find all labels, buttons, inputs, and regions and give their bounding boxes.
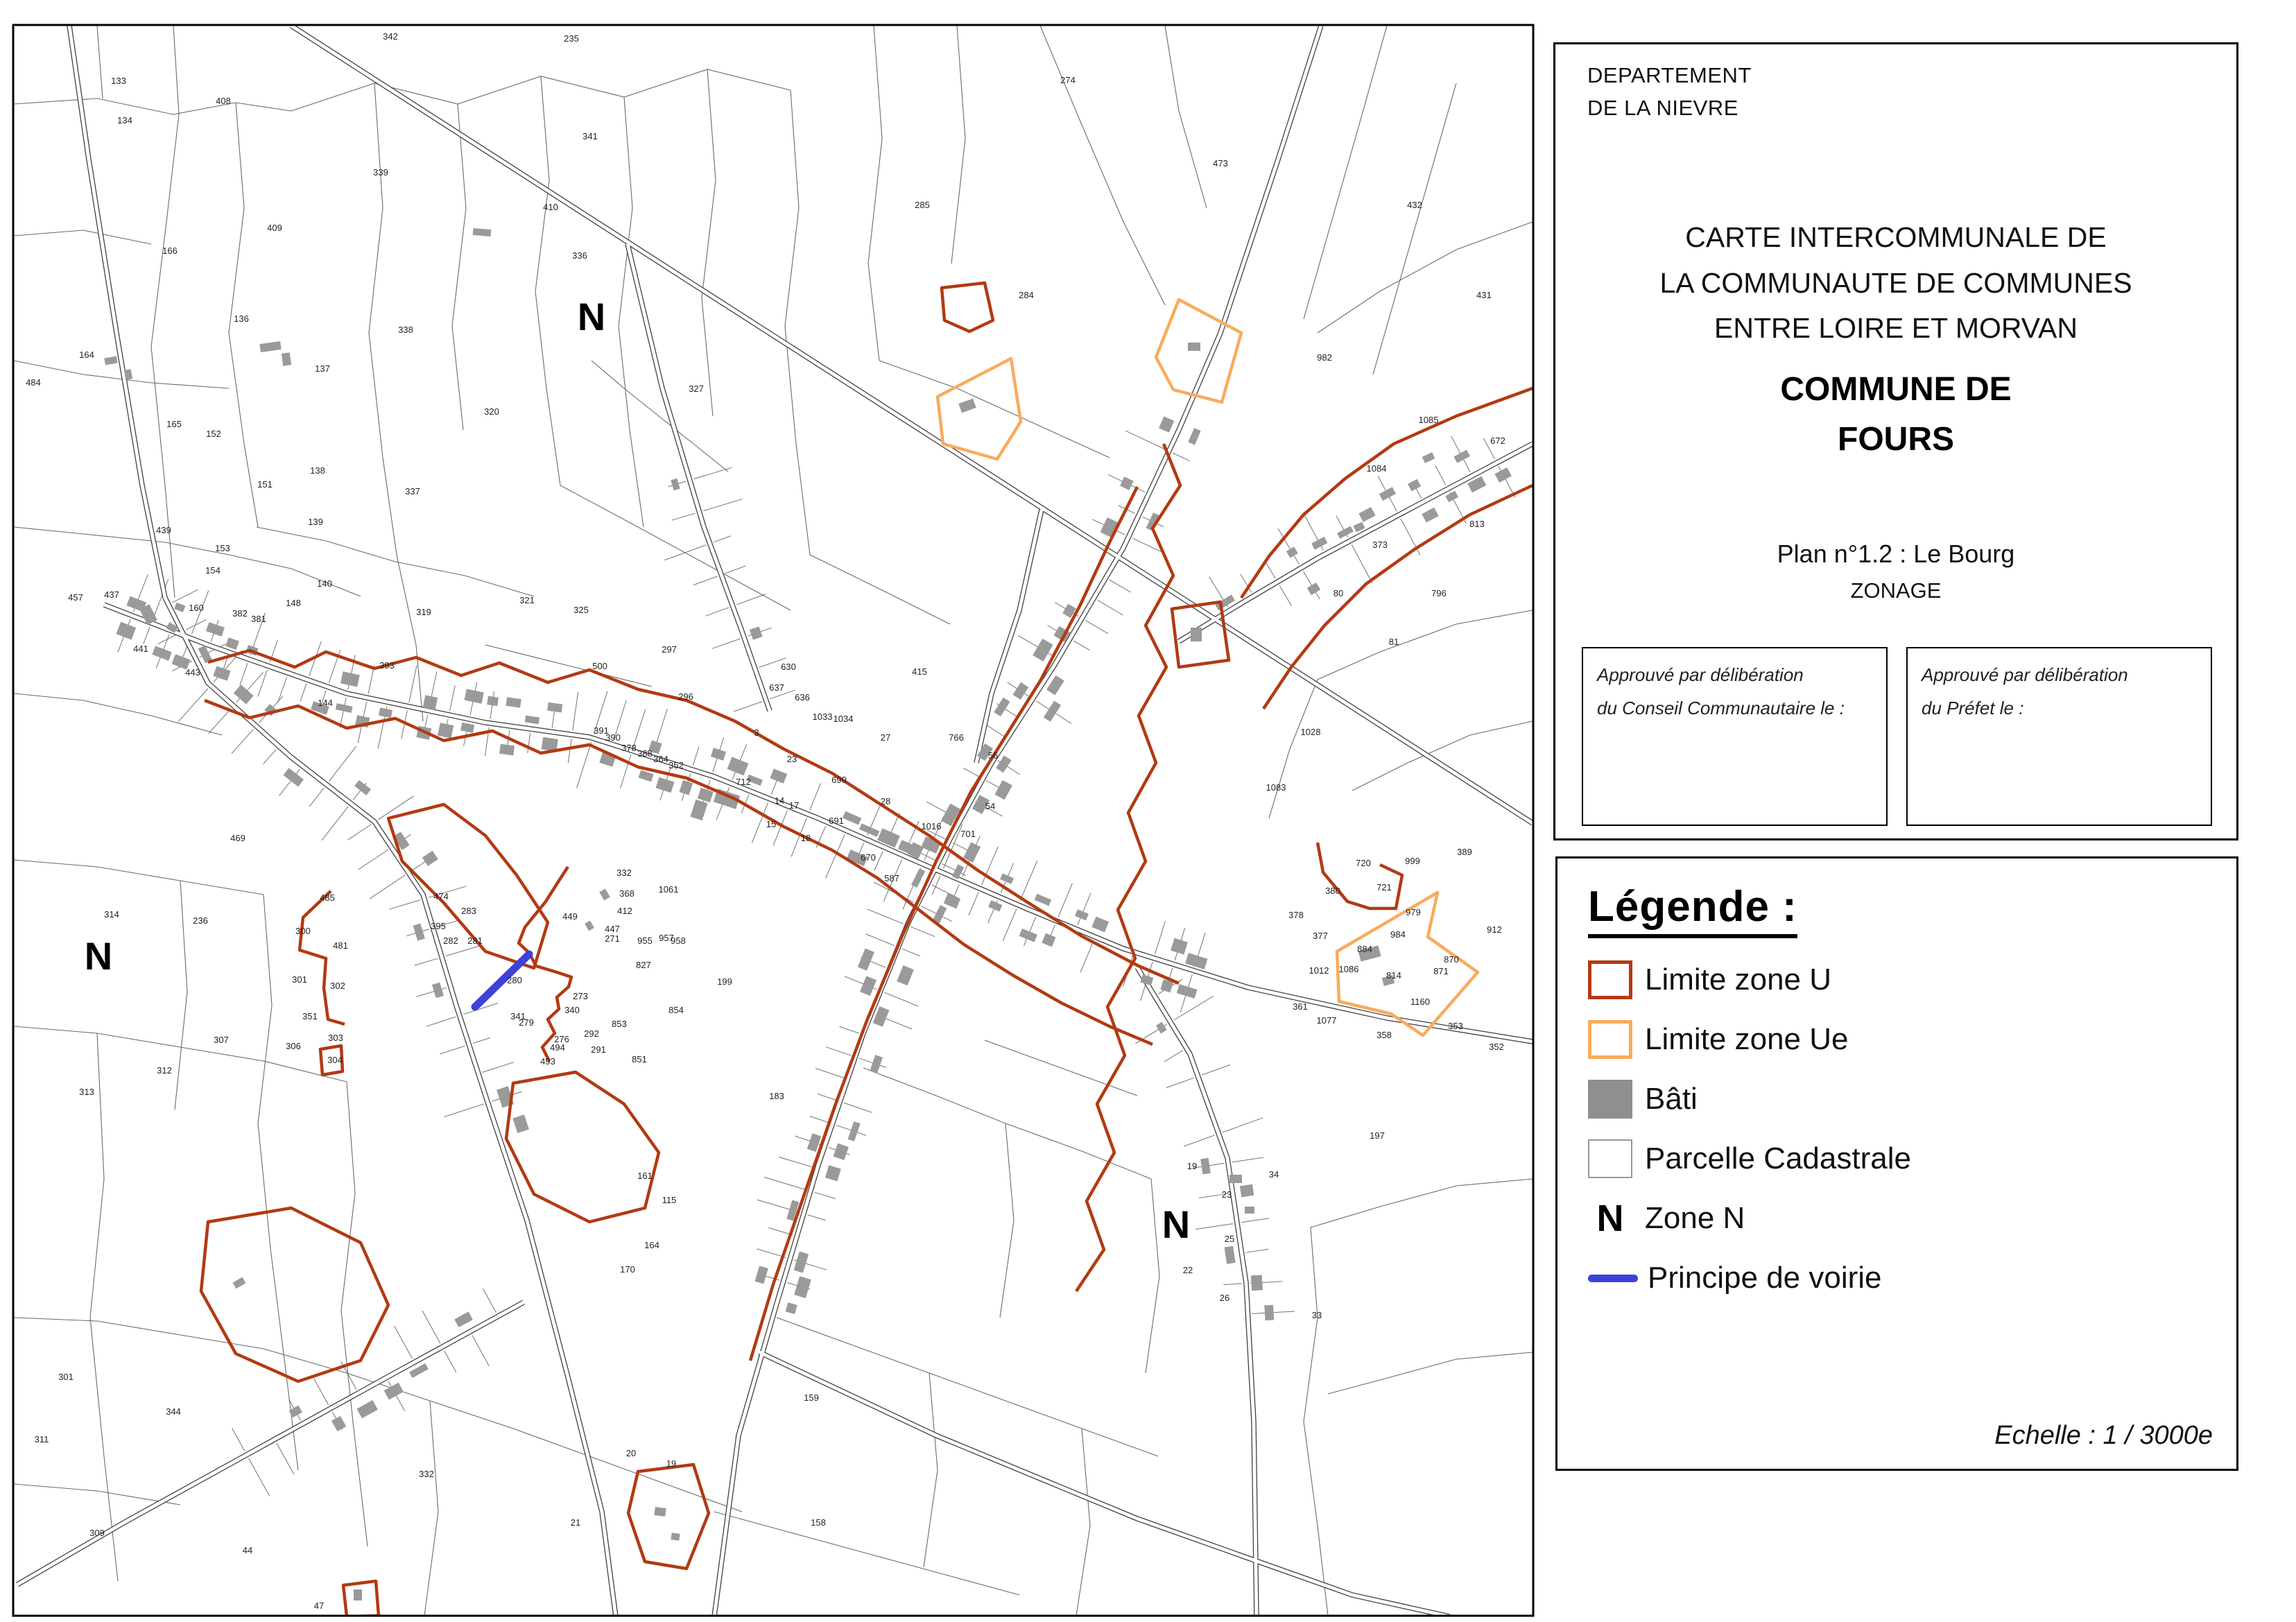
approval-prefet-line2: du Préfet le : (1922, 691, 2197, 725)
svg-text:690: 690 (831, 775, 847, 785)
svg-text:170: 170 (620, 1264, 635, 1275)
svg-text:332: 332 (616, 868, 632, 878)
legend-label: Limite zone U (1645, 963, 1831, 997)
svg-text:431: 431 (1476, 290, 1492, 300)
svg-text:332: 332 (419, 1469, 434, 1479)
limite-zone-ue-swatch (1588, 1020, 1632, 1059)
svg-text:484: 484 (26, 377, 41, 388)
svg-text:854: 854 (668, 1005, 684, 1015)
road-route-ouest (69, 26, 616, 1616)
svg-text:139: 139 (308, 517, 323, 527)
approval-conseil-line1: Approuvé par délibération (1597, 658, 1872, 691)
legend-item-zone-n: NZone N (1588, 1198, 2236, 1239)
svg-text:766: 766 (949, 732, 964, 743)
road-rue-principale (104, 605, 1533, 1042)
svg-text:337: 337 (405, 486, 420, 497)
svg-text:814: 814 (1386, 970, 1401, 981)
legend-label: Parcelle Cadastrale (1645, 1141, 1911, 1176)
svg-text:301: 301 (292, 974, 307, 985)
svg-text:306: 306 (286, 1041, 301, 1051)
bati-swatch (1588, 1080, 1632, 1119)
svg-text:134: 134 (117, 115, 132, 126)
svg-text:154: 154 (205, 565, 221, 576)
svg-text:1085: 1085 (1419, 415, 1439, 425)
svg-text:304: 304 (327, 1055, 343, 1065)
svg-text:151: 151 (257, 479, 273, 490)
svg-text:291: 291 (591, 1044, 606, 1055)
svg-text:377: 377 (1313, 931, 1328, 941)
svg-text:133: 133 (111, 76, 126, 86)
svg-text:160: 160 (189, 603, 204, 613)
svg-text:144: 144 (318, 698, 333, 708)
svg-text:54: 54 (985, 801, 995, 811)
legend-item-limite-zone-u: Limite zone U (1588, 959, 2236, 1001)
voirie-line-swatch (1588, 1275, 1638, 1282)
svg-text:853: 853 (612, 1019, 627, 1029)
svg-text:637: 637 (769, 682, 784, 693)
svg-text:1160: 1160 (1410, 997, 1430, 1007)
svg-text:415: 415 (912, 666, 927, 677)
commune-title: COMMUNE DE FOURS (1555, 365, 2236, 465)
svg-text:158: 158 (811, 1517, 826, 1528)
legend-label: Limite zone Ue (1645, 1022, 1848, 1057)
svg-text:393: 393 (379, 660, 395, 671)
svg-text:137: 137 (315, 363, 330, 374)
zone-n-label: N (1162, 1202, 1190, 1246)
svg-text:28: 28 (881, 796, 890, 806)
svg-text:1077: 1077 (1317, 1015, 1337, 1026)
svg-text:115: 115 (662, 1195, 677, 1205)
zone-n-label: N (578, 295, 605, 338)
svg-text:344: 344 (166, 1406, 181, 1417)
svg-text:955: 955 (637, 935, 653, 946)
svg-text:361: 361 (1293, 1001, 1308, 1012)
svg-text:447: 447 (605, 924, 620, 934)
svg-text:395: 395 (431, 921, 446, 931)
road-route-sud-est (759, 1352, 1449, 1616)
svg-text:342: 342 (383, 31, 398, 42)
legend-item-bati: Bâti (1588, 1078, 2236, 1120)
svg-text:378: 378 (621, 743, 637, 753)
svg-text:884: 884 (1357, 944, 1372, 954)
svg-text:15: 15 (766, 819, 776, 829)
svg-text:1033: 1033 (813, 711, 833, 722)
department-line1: DEPARTEMENT (1587, 60, 1752, 92)
svg-text:473: 473 (1213, 158, 1228, 169)
commune-line1: COMMUNE DE (1555, 365, 2236, 415)
svg-text:17: 17 (789, 800, 799, 811)
svg-text:19: 19 (1187, 1161, 1197, 1171)
svg-text:56: 56 (988, 750, 998, 761)
svg-text:320: 320 (484, 406, 499, 417)
svg-text:153: 153 (215, 543, 230, 553)
svg-text:358: 358 (1376, 1030, 1392, 1040)
road-route-sud (1137, 967, 1257, 1616)
svg-text:341: 341 (582, 131, 598, 141)
svg-text:311: 311 (35, 1434, 49, 1444)
svg-text:285: 285 (915, 200, 930, 210)
svg-text:297: 297 (662, 644, 677, 655)
svg-text:282: 282 (443, 935, 458, 946)
svg-text:336: 336 (572, 250, 587, 261)
svg-text:14: 14 (775, 795, 784, 806)
map-title-line1: CARTE INTERCOMMUNALE DE (1555, 215, 2236, 261)
plan-number: Plan n°1.2 : Le Bourg (1555, 540, 2236, 569)
svg-text:23: 23 (787, 754, 797, 764)
svg-text:672: 672 (1490, 435, 1505, 446)
svg-text:352: 352 (1489, 1042, 1504, 1052)
svg-text:313: 313 (79, 1087, 94, 1097)
svg-text:469: 469 (230, 833, 245, 843)
approval-box-conseil: Approuvé par délibération du Conseil Com… (1582, 647, 1888, 826)
svg-text:152: 152 (206, 429, 221, 439)
approval-conseil-line2: du Conseil Communautaire le : (1597, 691, 1872, 725)
svg-text:670: 670 (861, 852, 876, 863)
svg-text:20: 20 (626, 1448, 636, 1458)
svg-text:283: 283 (461, 906, 476, 916)
svg-text:314: 314 (104, 909, 119, 920)
svg-text:338: 338 (398, 325, 413, 335)
svg-text:380: 380 (1325, 886, 1340, 896)
svg-text:432: 432 (1407, 200, 1422, 210)
svg-text:979: 979 (1406, 907, 1421, 917)
svg-text:340: 340 (564, 1005, 580, 1015)
approval-box-prefet: Approuvé par délibération du Préfet le : (1906, 647, 2212, 826)
svg-text:485: 485 (320, 892, 335, 903)
svg-text:409: 409 (267, 223, 282, 233)
svg-text:500: 500 (592, 661, 607, 671)
svg-text:412: 412 (617, 906, 632, 916)
commune-line2: FOURS (1555, 415, 2236, 465)
svg-text:309: 309 (89, 1528, 105, 1538)
svg-text:912: 912 (1487, 924, 1502, 935)
svg-text:183: 183 (769, 1091, 784, 1101)
svg-text:871: 871 (1433, 966, 1449, 976)
svg-text:312: 312 (157, 1065, 172, 1076)
svg-text:284: 284 (1019, 290, 1034, 300)
legend-heading: Légende : (1588, 882, 1797, 938)
svg-text:199: 199 (717, 976, 732, 987)
svg-text:389: 389 (1457, 847, 1472, 857)
svg-text:364: 364 (653, 754, 668, 764)
scale-note: Echelle : 1 / 3000e (1994, 1421, 2213, 1451)
svg-text:382: 382 (232, 608, 248, 619)
svg-text:136: 136 (234, 313, 249, 324)
approval-prefet-line1: Approuvé par délibération (1922, 658, 2197, 691)
svg-text:493: 493 (540, 1056, 555, 1067)
svg-text:636: 636 (795, 692, 810, 702)
svg-text:481: 481 (333, 940, 348, 951)
svg-text:351: 351 (302, 1011, 318, 1021)
legend-items: Limite zone ULimite zone UeBâtiParcelle … (1588, 959, 2236, 1299)
svg-text:23: 23 (1222, 1189, 1232, 1200)
svg-text:813: 813 (1469, 519, 1485, 529)
svg-text:439: 439 (156, 525, 171, 535)
svg-text:701: 701 (960, 829, 976, 839)
svg-text:271: 271 (605, 933, 620, 944)
svg-text:630: 630 (781, 662, 796, 672)
svg-text:236: 236 (193, 915, 208, 926)
svg-text:1086: 1086 (1339, 964, 1359, 974)
svg-text:587: 587 (884, 873, 899, 883)
svg-text:443: 443 (185, 667, 200, 678)
svg-text:138: 138 (310, 465, 325, 476)
zone-n-letter-swatch: N (1588, 1197, 1632, 1240)
svg-text:26: 26 (1220, 1293, 1229, 1303)
svg-text:164: 164 (79, 350, 94, 360)
svg-text:296: 296 (678, 691, 693, 702)
svg-text:25: 25 (1225, 1234, 1234, 1244)
svg-text:381: 381 (251, 614, 266, 624)
legend-label: Principe de voirie (1648, 1261, 1882, 1295)
svg-text:19: 19 (666, 1458, 676, 1469)
map-title: CARTE INTERCOMMUNALE DE LA COMMUNAUTE DE… (1555, 215, 2236, 352)
svg-text:319: 319 (416, 607, 431, 617)
svg-text:161: 161 (637, 1171, 653, 1181)
svg-text:352: 352 (668, 760, 684, 770)
svg-text:325: 325 (573, 605, 589, 615)
svg-text:982: 982 (1317, 352, 1332, 363)
map-title-line2: LA COMMUNAUTE DE COMMUNES (1555, 261, 2236, 307)
plan-subtitle: ZONAGE (1555, 578, 2236, 603)
svg-text:273: 273 (573, 991, 588, 1001)
svg-text:408: 408 (216, 96, 231, 106)
limite-zone-u-swatch (1588, 960, 1632, 999)
svg-text:691: 691 (829, 816, 844, 826)
department-line2: DE LA NIEVRE (1587, 92, 1752, 125)
svg-text:390: 390 (605, 732, 621, 743)
svg-text:292: 292 (584, 1028, 599, 1039)
legend-item-limite-zone-ue: Limite zone Ue (1588, 1019, 2236, 1060)
svg-text:984: 984 (1390, 929, 1406, 940)
svg-text:280: 280 (507, 975, 522, 985)
svg-text:457: 457 (68, 592, 83, 603)
svg-text:378: 378 (1288, 910, 1304, 920)
svg-text:870: 870 (1444, 954, 1459, 965)
svg-text:33: 33 (1312, 1310, 1322, 1320)
svg-text:827: 827 (636, 960, 651, 970)
svg-text:21: 21 (571, 1517, 580, 1528)
svg-text:18: 18 (801, 833, 811, 843)
svg-text:81: 81 (1389, 637, 1399, 647)
legend-label: Bâti (1645, 1082, 1698, 1116)
svg-text:958: 958 (671, 935, 686, 946)
svg-text:851: 851 (632, 1054, 647, 1064)
legend-label: Zone N (1645, 1201, 1745, 1236)
svg-text:307: 307 (214, 1035, 229, 1045)
svg-text:321: 321 (519, 595, 535, 605)
svg-text:140: 140 (317, 578, 332, 589)
svg-text:474: 474 (433, 891, 449, 901)
svg-text:1016: 1016 (922, 821, 942, 831)
svg-text:159: 159 (804, 1392, 819, 1403)
svg-text:281: 281 (467, 935, 483, 946)
svg-text:796: 796 (1431, 588, 1447, 598)
svg-text:712: 712 (736, 777, 751, 787)
svg-text:720: 720 (1356, 858, 1371, 868)
svg-text:1028: 1028 (1301, 727, 1321, 737)
svg-text:999: 999 (1405, 856, 1420, 866)
svg-text:437: 437 (104, 589, 119, 600)
svg-text:410: 410 (543, 202, 558, 212)
map-title-line3: ENTRE LOIRE ET MORVAN (1555, 306, 2236, 352)
legend-item-parcelle: Parcelle Cadastrale (1588, 1138, 2236, 1180)
svg-text:44: 44 (243, 1545, 252, 1555)
svg-text:279: 279 (519, 1017, 534, 1028)
title-block: DEPARTEMENT DE LA NIEVRE CARTE INTERCOMM… (1553, 42, 2238, 840)
svg-text:274: 274 (1060, 75, 1076, 85)
svg-text:373: 373 (1372, 540, 1388, 550)
svg-text:3: 3 (754, 727, 759, 738)
page: NNN1331344083422353413394104091661363381… (0, 0, 2296, 1622)
svg-text:34: 34 (1269, 1169, 1279, 1180)
svg-text:1084: 1084 (1367, 463, 1387, 474)
svg-text:1061: 1061 (659, 884, 679, 895)
legend-item-principe-voirie: Principe de voirie (1588, 1257, 2236, 1299)
svg-text:368: 368 (619, 888, 635, 899)
svg-text:388: 388 (637, 748, 653, 759)
svg-text:721: 721 (1376, 882, 1392, 892)
svg-text:164: 164 (644, 1240, 659, 1250)
svg-text:166: 166 (162, 245, 178, 256)
svg-text:339: 339 (373, 167, 388, 178)
department-label: DEPARTEMENT DE LA NIEVRE (1587, 60, 1752, 124)
svg-text:47: 47 (314, 1601, 324, 1611)
svg-text:1012: 1012 (1309, 965, 1329, 976)
svg-text:302: 302 (330, 981, 345, 991)
svg-text:1083: 1083 (1266, 782, 1286, 793)
svg-text:303: 303 (328, 1033, 343, 1043)
svg-text:494: 494 (550, 1042, 565, 1053)
legend-block: Légende : Limite zone ULimite zone UeBât… (1555, 856, 2238, 1471)
parcelle-swatch (1588, 1139, 1632, 1178)
svg-text:22: 22 (1183, 1265, 1193, 1275)
svg-text:300: 300 (295, 926, 311, 936)
svg-text:449: 449 (562, 911, 578, 922)
svg-text:235: 235 (564, 33, 579, 44)
svg-text:327: 327 (689, 383, 704, 394)
svg-text:301: 301 (58, 1372, 74, 1382)
svg-text:27: 27 (881, 732, 890, 743)
svg-text:441: 441 (133, 644, 148, 654)
zone-n-label: N (85, 934, 112, 978)
svg-text:165: 165 (166, 419, 182, 429)
svg-text:1034: 1034 (834, 714, 854, 724)
svg-text:353: 353 (1448, 1021, 1463, 1031)
svg-text:148: 148 (286, 598, 301, 608)
svg-text:80: 80 (1333, 588, 1343, 598)
svg-text:197: 197 (1370, 1130, 1385, 1141)
